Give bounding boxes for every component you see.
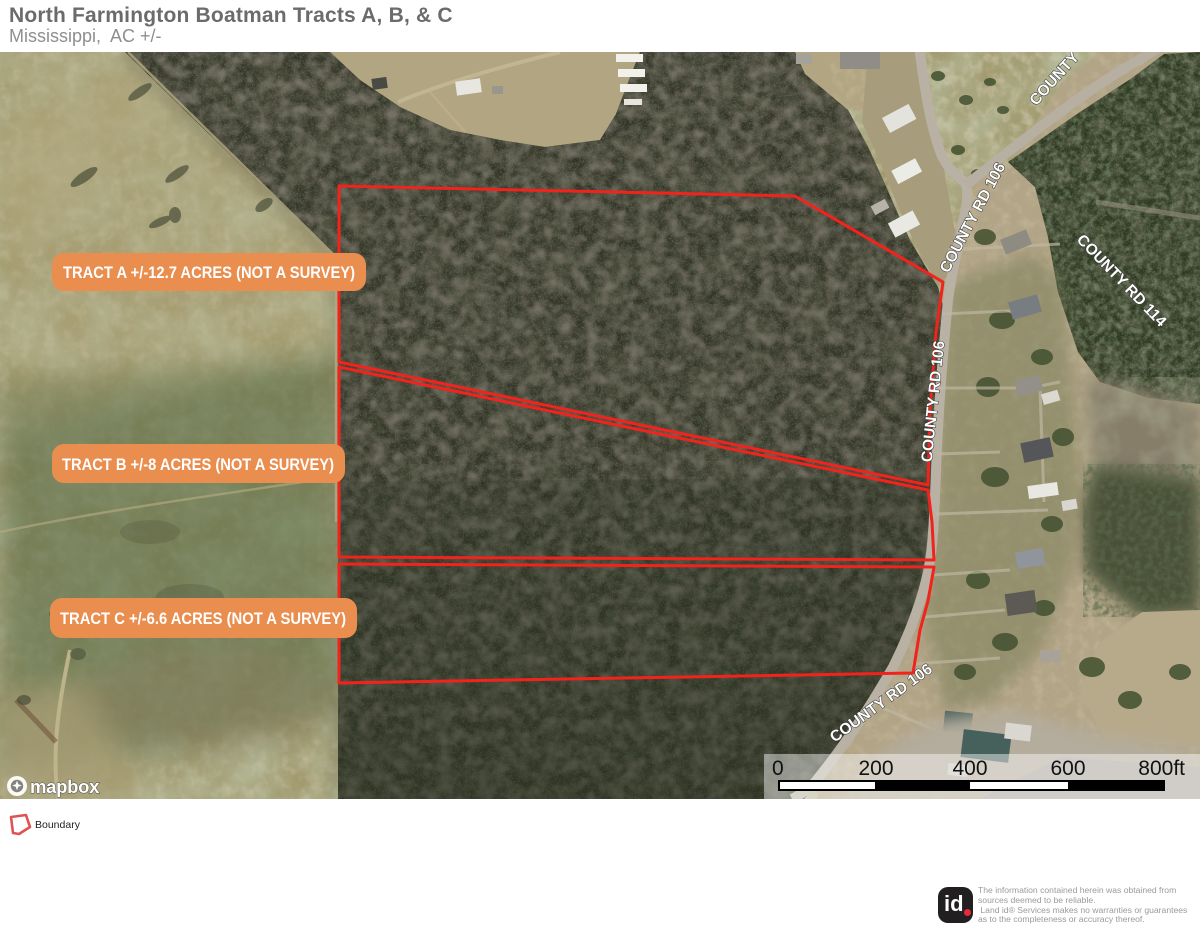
svg-text:TRACT B +/-8 ACRES (NOT A SURV: TRACT B +/-8 ACRES (NOT A SURVEY) [62,455,334,474]
svg-text:400: 400 [952,757,987,780]
svg-text:600: 600 [1050,757,1085,780]
svg-text:TRACT C +/-6.6 ACRES (NOT A SU: TRACT C +/-6.6 ACRES (NOT A SURVEY) [60,609,346,628]
svg-text:0: 0 [772,757,784,780]
svg-text:200: 200 [858,757,893,780]
svg-text:800ft: 800ft [1138,757,1185,780]
svg-text:TRACT A +/-12.7 ACRES (NOT A S: TRACT A +/-12.7 ACRES (NOT A SURVEY) [63,263,355,282]
svg-text:mapbox: mapbox [30,776,100,797]
